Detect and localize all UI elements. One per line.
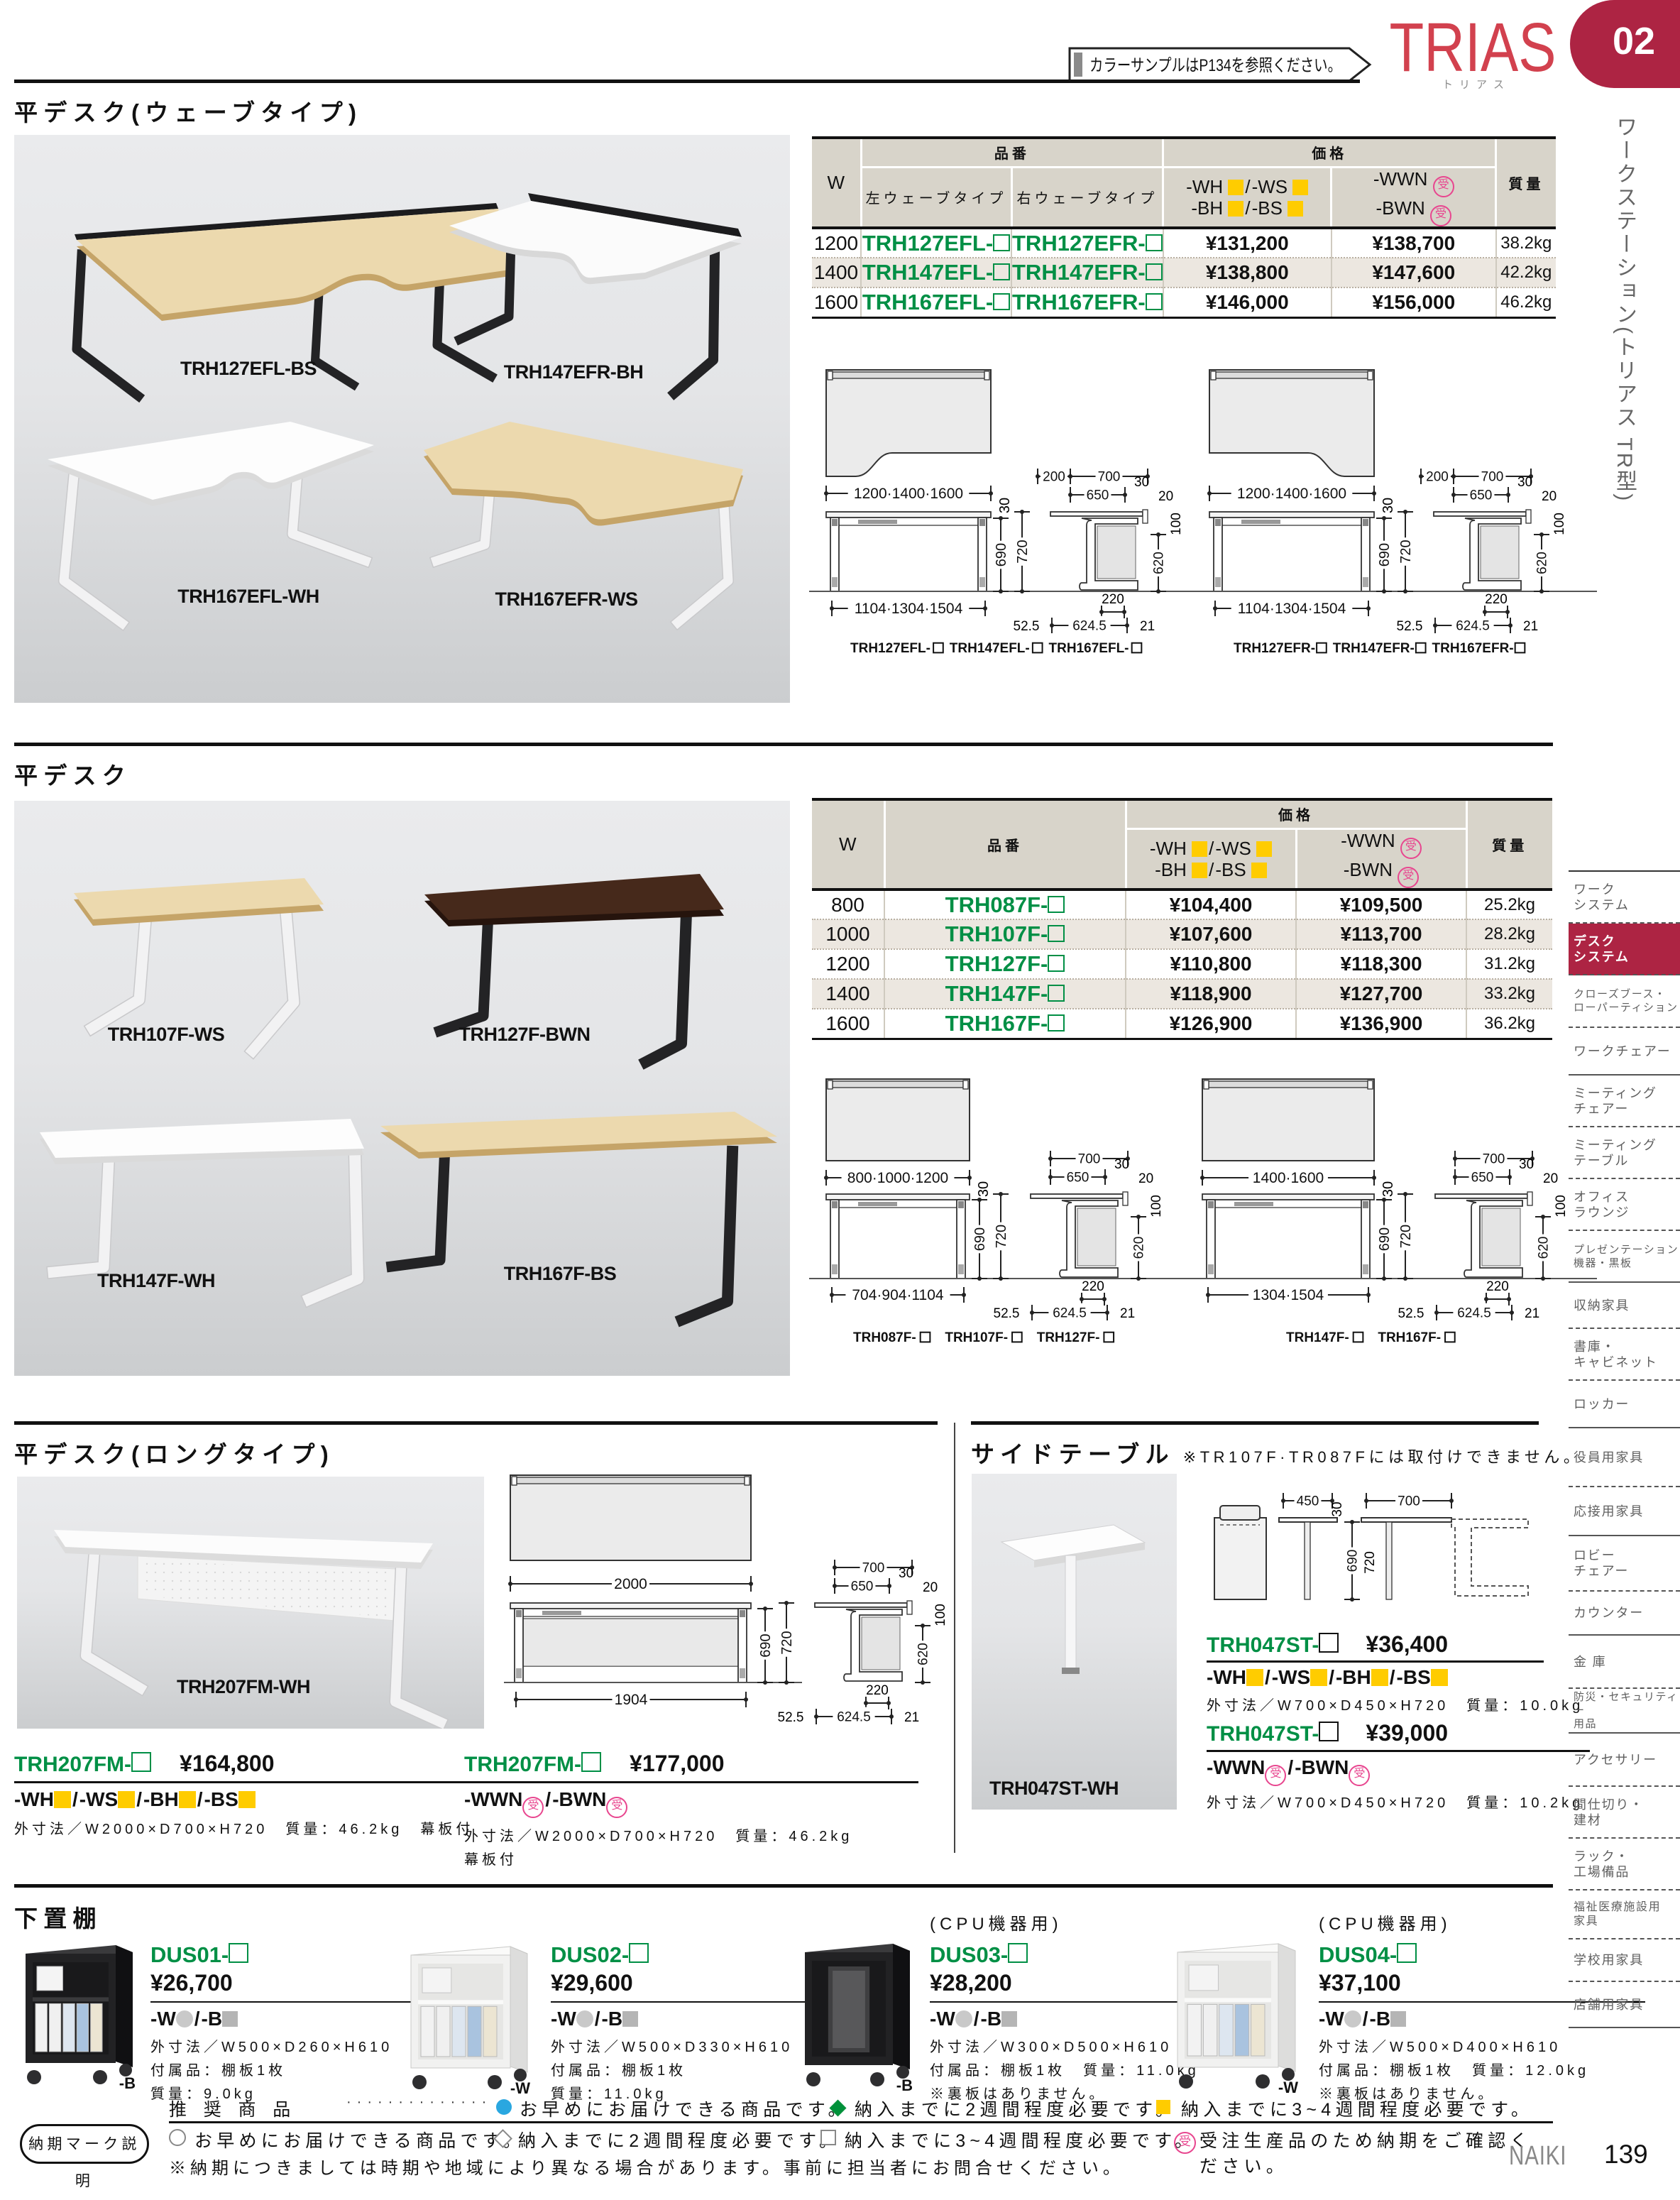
svg-text:20: 20	[923, 1580, 938, 1595]
svg-text:TRH167EFL-: TRH167EFL-	[1049, 641, 1129, 656]
svg-text:690: 690	[758, 1633, 774, 1657]
svg-text:52.5: 52.5	[1014, 619, 1040, 634]
svg-text:TRH167EFR-WS: TRH167EFR-WS	[495, 589, 637, 610]
svg-text:52.5: 52.5	[1398, 1306, 1424, 1321]
svg-text:TRH167F-BS: TRH167F-BS	[504, 1263, 617, 1284]
svg-text:100: 100	[933, 1604, 948, 1626]
svg-text:1304·1504: 1304·1504	[1253, 1287, 1324, 1303]
svg-text:TRIAS: TRIAS	[1390, 9, 1557, 86]
svg-text:21: 21	[1525, 1306, 1539, 1321]
svg-text:1200·1400·1600: 1200·1400·1600	[1237, 486, 1346, 502]
svg-text:624.5: 624.5	[1456, 618, 1490, 633]
svg-text:220: 220	[1082, 1279, 1104, 1294]
svg-text:20: 20	[1158, 489, 1173, 504]
svg-text:650: 650	[1471, 1170, 1494, 1185]
svg-text:450: 450	[1297, 1494, 1319, 1509]
svg-text:100: 100	[1554, 1195, 1569, 1217]
svg-text:200: 200	[1043, 469, 1065, 484]
svg-text:220: 220	[1486, 1279, 1509, 1294]
svg-text:720: 720	[1398, 540, 1414, 563]
svg-text:30: 30	[899, 1566, 913, 1581]
svg-text:TRH087F-: TRH087F-	[853, 1330, 916, 1345]
svg-text:624.5: 624.5	[1457, 1306, 1491, 1320]
svg-text:20: 20	[1543, 1171, 1558, 1186]
svg-text:21: 21	[1120, 1306, 1135, 1321]
svg-text:220: 220	[1485, 592, 1508, 607]
svg-text:1104·1304·1504: 1104·1304·1504	[855, 601, 963, 617]
svg-text:2000: 2000	[614, 1576, 647, 1592]
svg-text:30: 30	[1134, 475, 1149, 490]
svg-text:650: 650	[851, 1579, 874, 1594]
svg-text:TRH047ST-WH: TRH047ST-WH	[989, 1778, 1119, 1799]
svg-text:720: 720	[1363, 1551, 1378, 1574]
svg-text:624.5: 624.5	[1053, 1306, 1087, 1320]
svg-text:720: 720	[994, 1225, 1009, 1248]
svg-text:-W: -W	[510, 2079, 530, 2096]
svg-text:620: 620	[1151, 552, 1166, 574]
svg-text:800·1000·1200: 800·1000·1200	[847, 1170, 948, 1186]
svg-text:TRH167F-: TRH167F-	[1378, 1330, 1441, 1345]
svg-text:-B: -B	[119, 2074, 136, 2091]
svg-text:700: 700	[1483, 1151, 1505, 1166]
svg-text:720: 720	[1015, 540, 1031, 563]
svg-text:700: 700	[1481, 469, 1504, 484]
svg-text:650: 650	[1067, 1170, 1089, 1185]
svg-text:1200·1400·1600: 1200·1400·1600	[854, 486, 963, 502]
svg-text:100: 100	[1149, 1195, 1164, 1217]
svg-text:100: 100	[1169, 513, 1184, 535]
svg-text:704·904·1104: 704·904·1104	[852, 1287, 944, 1303]
svg-text:21: 21	[1523, 619, 1538, 634]
svg-text:TRH147EFR-BH: TRH147EFR-BH	[504, 361, 644, 383]
svg-text:720: 720	[1398, 1225, 1414, 1248]
svg-text:TRH167EFL-WH: TRH167EFL-WH	[177, 586, 319, 607]
svg-text:21: 21	[904, 1710, 919, 1725]
svg-text:620: 620	[1536, 1237, 1551, 1259]
svg-text:30: 30	[1517, 475, 1532, 490]
svg-text:20: 20	[1542, 489, 1557, 504]
svg-text:30: 30	[1114, 1157, 1129, 1172]
svg-text:690: 690	[994, 543, 1009, 567]
svg-text:TRH127EFL-: TRH127EFL-	[850, 641, 930, 656]
svg-text:620: 620	[1131, 1237, 1146, 1259]
svg-text:620: 620	[1534, 552, 1549, 574]
svg-text:624.5: 624.5	[1072, 618, 1107, 633]
svg-text:100: 100	[1552, 513, 1567, 535]
svg-text:1904: 1904	[615, 1692, 648, 1708]
svg-text:650: 650	[1470, 488, 1493, 503]
svg-text:TRH107F-: TRH107F-	[945, 1330, 1008, 1345]
svg-text:1104·1304·1504: 1104·1304·1504	[1238, 601, 1346, 617]
svg-text:700: 700	[1098, 469, 1121, 484]
svg-text:52.5: 52.5	[994, 1306, 1020, 1321]
svg-text:52.5: 52.5	[778, 1710, 804, 1725]
svg-text:21: 21	[1140, 619, 1155, 634]
svg-text:30: 30	[1380, 498, 1396, 513]
svg-text:700: 700	[1078, 1151, 1101, 1166]
svg-text:カラーサンプルはP134を参照ください。: カラーサンプルはP134を参照ください。	[1089, 56, 1341, 75]
svg-text:220: 220	[866, 1683, 889, 1698]
svg-text:700: 700	[862, 1560, 885, 1575]
svg-text:TRH107F-WS: TRH107F-WS	[108, 1024, 225, 1045]
svg-text:700: 700	[1398, 1494, 1420, 1509]
svg-text:TRH147F-: TRH147F-	[1286, 1330, 1349, 1345]
svg-text:TRH127EFL-BS: TRH127EFL-BS	[180, 358, 317, 379]
svg-text:52.5: 52.5	[1397, 619, 1423, 634]
svg-text:620: 620	[916, 1643, 930, 1665]
svg-text:690: 690	[972, 1227, 988, 1251]
svg-text:20: 20	[1138, 1171, 1153, 1186]
svg-text:30: 30	[997, 498, 1013, 513]
svg-text:624.5: 624.5	[837, 1709, 871, 1724]
svg-text:720: 720	[779, 1631, 795, 1654]
svg-text:-W: -W	[1278, 2079, 1298, 2096]
svg-text:TRH127EFR-: TRH127EFR-	[1234, 641, 1315, 656]
svg-text:690: 690	[1377, 543, 1393, 567]
svg-text:30: 30	[1519, 1157, 1534, 1172]
svg-text:1400·1600: 1400·1600	[1253, 1170, 1324, 1186]
svg-text:200: 200	[1426, 469, 1449, 484]
svg-text:TRH207FM-WH: TRH207FM-WH	[177, 1676, 310, 1697]
svg-text:TRH127F-BWN: TRH127F-BWN	[459, 1024, 590, 1045]
svg-text:690: 690	[1377, 1227, 1393, 1251]
svg-text:30: 30	[1330, 1501, 1345, 1516]
svg-text:トリアス: トリアス	[1442, 79, 1510, 91]
svg-text:30: 30	[1380, 1181, 1396, 1197]
svg-text:-B: -B	[896, 2076, 913, 2094]
svg-text:TRH147F-WH: TRH147F-WH	[97, 1270, 215, 1291]
svg-text:TRH147EFR-: TRH147EFR-	[1333, 641, 1415, 656]
svg-text:220: 220	[1102, 592, 1124, 607]
svg-text:30: 30	[976, 1181, 992, 1197]
svg-text:TRH167EFR-: TRH167EFR-	[1432, 641, 1514, 656]
svg-text:690: 690	[1345, 1550, 1360, 1572]
svg-text:650: 650	[1087, 488, 1109, 503]
svg-text:TRH147EFL-: TRH147EFL-	[950, 641, 1030, 656]
svg-text:TRH127F-: TRH127F-	[1037, 1330, 1100, 1345]
